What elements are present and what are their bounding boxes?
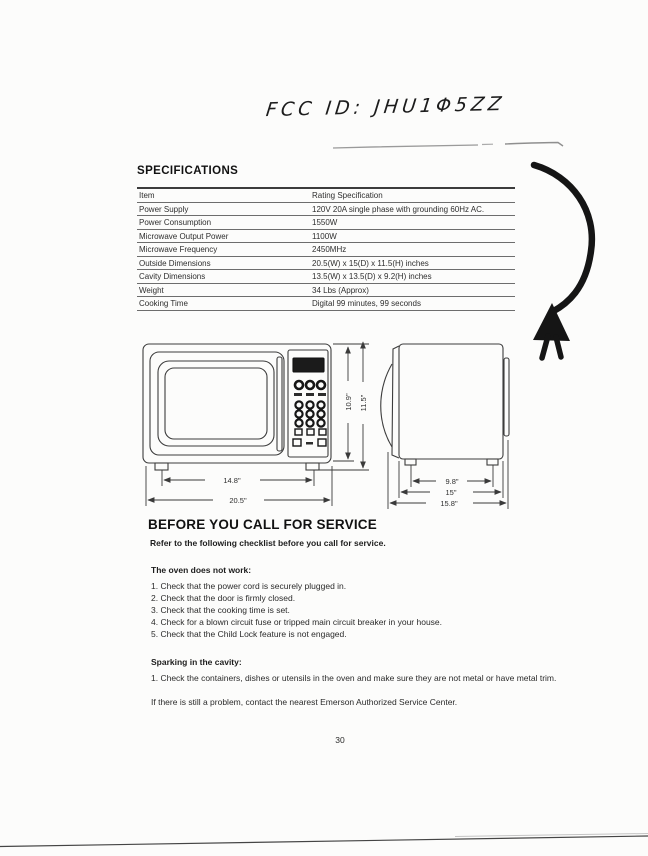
checklist-item: 2. Check that the door is firmly closed. — [151, 592, 591, 604]
specifications-title: SPECIFICATIONS — [137, 165, 238, 177]
service-checklist-sparking: 1. Check the containers, dishes or utens… — [151, 672, 592, 684]
spec-header-item: Item — [137, 188, 310, 202]
service-title: BEFORE YOU CALL FOR SERVICE — [148, 517, 592, 532]
side-view-diagram — [381, 344, 509, 465]
spec-row: Power Supply 120V 20A single phase with … — [137, 202, 515, 216]
service-footer: If there is still a problem, contact the… — [151, 697, 591, 707]
front-view-dimensions — [146, 342, 369, 506]
spec-cell-value: 13.5(W) x 13.5(D) x 9.2(H) inches — [310, 270, 515, 284]
hand-drawn-arrow — [510, 150, 620, 365]
dimension-diagram: 10.9" 11.5" 14.8" 20.5" — [135, 335, 520, 515]
side-depth-overall-label: 15.8" — [440, 499, 458, 508]
spec-cell-item: Weight — [137, 283, 310, 297]
spec-row: Weight 34 Lbs (Approx) — [137, 283, 515, 297]
spec-row: Cavity Dimensions 13.5(W) x 13.5(D) x 9.… — [137, 270, 515, 284]
spec-row: Microwave Output Power 1100W — [137, 229, 515, 243]
control-buttons — [293, 381, 326, 446]
spec-cell-value: 1550W — [310, 216, 515, 230]
side-depth-feet-label: 9.8" — [445, 477, 458, 486]
spec-row: Outside Dimensions 20.5(W) x 15(D) x 11.… — [137, 256, 515, 270]
spec-cell-item: Outside Dimensions — [137, 256, 310, 270]
service-subheading-sparking: Sparking in the cavity: — [151, 657, 592, 667]
checklist-item: 3. Check that the cooking time is set. — [151, 604, 591, 616]
side-depth-body-label: 15" — [445, 488, 456, 497]
spec-cell-value: 2450MHz — [310, 243, 515, 257]
specifications-table: Item Rating Specification Power Supply 1… — [137, 187, 515, 311]
spec-row: Cooking Time Digital 99 minutes, 99 seco… — [137, 297, 515, 311]
service-intro: Refer to the following checklist before … — [150, 538, 592, 548]
service-section: BEFORE YOU CALL FOR SERVICE Refer to the… — [148, 517, 592, 707]
spec-header-value: Rating Specification — [310, 188, 515, 202]
scan-edge-line — [0, 825, 648, 856]
spec-cell-item: Power Supply — [137, 202, 310, 216]
checklist-item: 1. Check the containers, dishes or utens… — [151, 672, 591, 684]
scanned-manual-page: FCC ID: JHU1Φ5ZZ SPECIFICATIONS Item Rat… — [0, 0, 648, 856]
spec-row: Microwave Frequency 2450MHz — [137, 243, 515, 257]
handwritten-fcc-id: FCC ID: JHU1Φ5ZZ — [265, 93, 507, 121]
spec-cell-item: Microwave Output Power — [137, 229, 310, 243]
spec-cell-item: Power Consumption — [137, 216, 310, 230]
front-width-overall-label: 20.5" — [229, 496, 247, 505]
spec-header-row: Item Rating Specification — [137, 188, 515, 202]
checklist-item: 5. Check that the Child Lock feature is … — [151, 628, 591, 640]
spec-cell-value: 1100W — [310, 229, 515, 243]
service-subheading-oven-not-work: The oven does not work: — [151, 565, 592, 575]
spec-cell-item: Cavity Dimensions — [137, 270, 310, 284]
page-number: 30 — [328, 735, 352, 745]
front-width-feet-label: 14.8" — [223, 476, 241, 485]
spec-cell-value: 34 Lbs (Approx) — [310, 283, 515, 297]
service-checklist-oven: 1. Check that the power cord is securely… — [151, 580, 592, 640]
spec-cell-item: Cooking Time — [137, 297, 310, 311]
spec-cell-value: 20.5(W) x 15(D) x 11.5(H) inches — [310, 256, 515, 270]
spec-cell-item: Microwave Frequency — [137, 243, 310, 257]
front-view-diagram — [143, 344, 331, 470]
spec-cell-value: Digital 99 minutes, 99 seconds — [310, 297, 515, 311]
checklist-item: 4. Check for a blown circuit fuse or tri… — [151, 616, 591, 628]
spec-cell-value: 120V 20A single phase with grounding 60H… — [310, 202, 515, 216]
spec-row: Power Consumption 1550W — [137, 216, 515, 230]
front-height-overall-label: 11.5" — [359, 394, 368, 411]
checklist-item: 1. Check that the power cord is securely… — [151, 580, 591, 592]
front-height-body-label: 10.9" — [344, 393, 353, 411]
